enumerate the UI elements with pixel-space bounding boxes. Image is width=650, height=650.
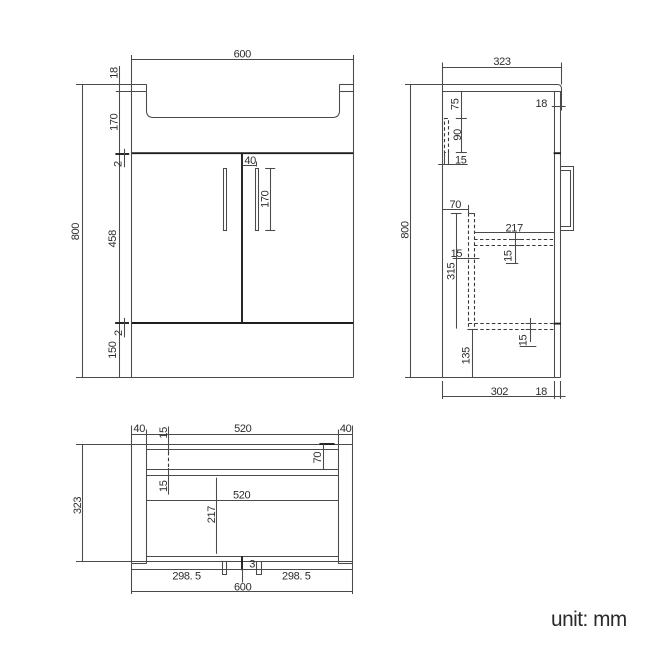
svg-text:800: 800 [400,221,412,239]
svg-text:135: 135 [461,347,473,365]
svg-text:15: 15 [158,427,170,439]
svg-text:15: 15 [158,480,170,492]
svg-text:40: 40 [340,423,352,435]
svg-text:170: 170 [260,190,272,208]
svg-text:70: 70 [312,452,324,464]
svg-text:217: 217 [506,222,524,234]
svg-text:unit: mm: unit: mm [551,608,627,631]
svg-text:150: 150 [107,341,119,359]
svg-text:18: 18 [108,67,120,79]
svg-text:323: 323 [72,497,84,515]
svg-text:75: 75 [449,98,461,110]
svg-text:90: 90 [452,129,464,141]
svg-text:40: 40 [133,423,145,435]
svg-text:2: 2 [113,161,125,167]
svg-text:323: 323 [493,56,511,68]
svg-text:600: 600 [234,49,252,61]
svg-text:15: 15 [455,154,467,166]
svg-text:40: 40 [244,155,256,167]
svg-text:800: 800 [70,223,82,241]
svg-text:18: 18 [536,98,548,110]
svg-text:315: 315 [446,263,458,281]
svg-text:18: 18 [535,386,547,398]
svg-text:520: 520 [233,489,251,501]
svg-text:3: 3 [249,558,255,570]
svg-text:302: 302 [491,386,509,398]
svg-text:458: 458 [107,230,119,248]
svg-text:15: 15 [502,250,514,262]
svg-text:298. 5: 298. 5 [282,570,311,582]
svg-text:15: 15 [518,335,530,347]
svg-text:600: 600 [234,582,252,594]
svg-text:2: 2 [113,330,125,336]
svg-text:15: 15 [451,248,463,260]
svg-text:520: 520 [234,423,252,435]
svg-text:298. 5: 298. 5 [172,570,201,582]
svg-text:170: 170 [108,113,120,131]
svg-text:217: 217 [206,506,218,524]
svg-text:70: 70 [450,199,462,211]
